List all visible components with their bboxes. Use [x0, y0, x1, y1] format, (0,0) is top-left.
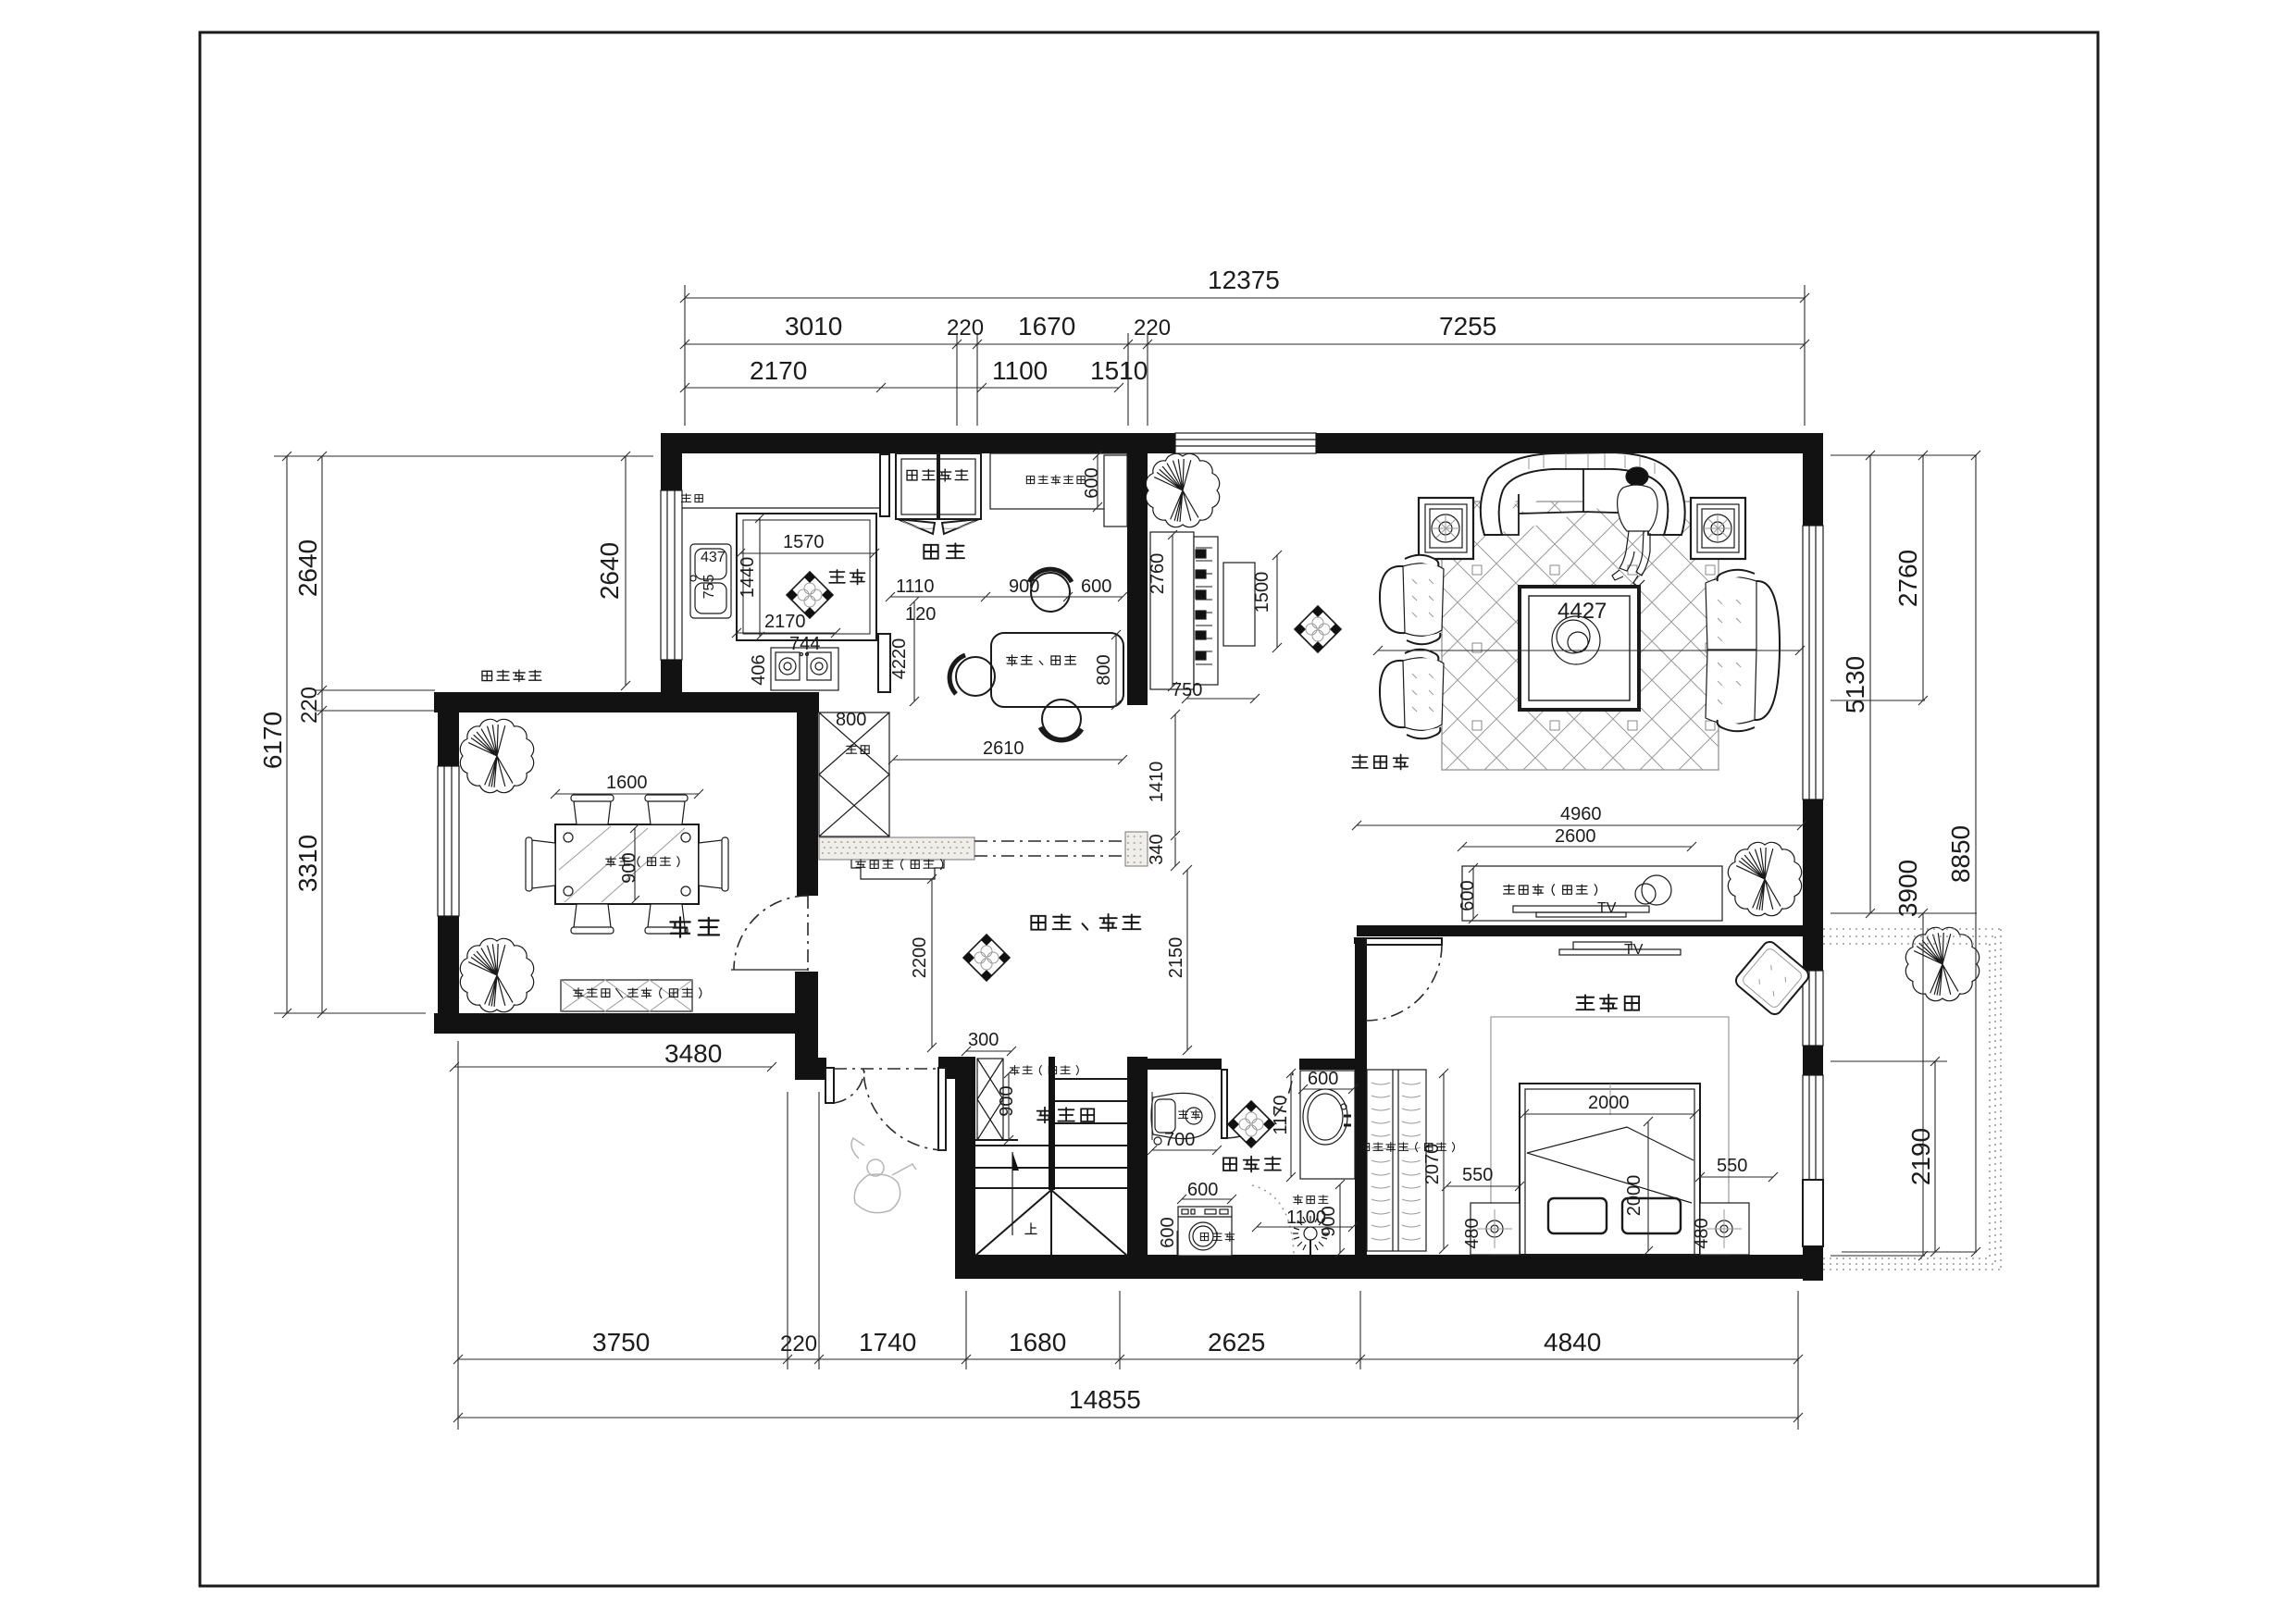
svg-text:750: 750 — [1172, 680, 1202, 700]
svg-text:1740: 1740 — [859, 1328, 916, 1357]
svg-text:2625: 2625 — [1208, 1328, 1265, 1357]
svg-text:1170: 1170 — [1271, 1095, 1291, 1134]
svg-text:1510: 1510 — [1090, 356, 1148, 385]
svg-text:2170: 2170 — [750, 356, 807, 385]
svg-text:480: 480 — [1692, 1218, 1712, 1248]
svg-text:2200: 2200 — [910, 937, 930, 979]
svg-text:600: 600 — [1308, 1069, 1338, 1089]
svg-text:2760: 2760 — [1893, 550, 1922, 607]
svg-text:550: 550 — [1462, 1165, 1493, 1185]
svg-text:900: 900 — [619, 852, 639, 883]
svg-text:4840: 4840 — [1544, 1328, 1601, 1357]
svg-text:3480: 3480 — [664, 1039, 722, 1068]
svg-text:1110: 1110 — [896, 576, 935, 597]
svg-text:2170: 2170 — [764, 612, 806, 632]
svg-text:1680: 1680 — [1009, 1328, 1066, 1357]
svg-text:1670: 1670 — [1018, 312, 1075, 341]
svg-text:12375: 12375 — [1208, 266, 1280, 294]
svg-text:1570: 1570 — [783, 532, 825, 552]
svg-text:900: 900 — [1319, 1206, 1339, 1236]
svg-text:406: 406 — [749, 654, 769, 685]
svg-text:550: 550 — [1717, 1156, 1747, 1176]
svg-text:1440: 1440 — [738, 557, 758, 599]
svg-text:4960: 4960 — [1560, 804, 1602, 824]
svg-text:2600: 2600 — [1555, 826, 1596, 847]
svg-text:600: 600 — [1458, 880, 1478, 911]
svg-text:7255: 7255 — [1439, 312, 1496, 341]
svg-text:2000: 2000 — [1624, 1175, 1644, 1217]
svg-text:1600: 1600 — [606, 773, 648, 793]
svg-text:220: 220 — [780, 1332, 817, 1357]
svg-text:1100: 1100 — [992, 356, 1048, 385]
svg-text:800: 800 — [1094, 654, 1114, 685]
svg-text:5130: 5130 — [1841, 656, 1869, 713]
svg-text:2190: 2190 — [1906, 1128, 1935, 1185]
svg-text:744: 744 — [789, 634, 820, 654]
svg-text:2640: 2640 — [595, 542, 624, 600]
svg-text:900: 900 — [1009, 576, 1039, 597]
svg-text:2760: 2760 — [1148, 553, 1168, 595]
svg-text:TV: TV — [1597, 900, 1617, 916]
svg-text:2640: 2640 — [293, 539, 322, 597]
svg-text:1410: 1410 — [1147, 762, 1167, 803]
svg-text:340: 340 — [1147, 834, 1167, 864]
svg-text:14855: 14855 — [1069, 1385, 1141, 1414]
svg-text:600: 600 — [1158, 1217, 1178, 1247]
svg-text:3310: 3310 — [293, 835, 322, 892]
svg-text:2150: 2150 — [1166, 937, 1186, 979]
svg-text:600: 600 — [1187, 1180, 1218, 1200]
svg-text:3750: 3750 — [592, 1328, 650, 1357]
svg-text:2000: 2000 — [1588, 1093, 1630, 1113]
svg-text:437: 437 — [701, 550, 726, 565]
svg-text:480: 480 — [1462, 1218, 1483, 1248]
svg-text:2610: 2610 — [983, 738, 1024, 759]
svg-text:700: 700 — [1164, 1130, 1195, 1150]
svg-text:TV: TV — [1624, 942, 1644, 958]
svg-text:300: 300 — [968, 1030, 999, 1050]
svg-text:4427: 4427 — [1558, 599, 1607, 624]
svg-text:900: 900 — [997, 1085, 1017, 1116]
svg-text:1500: 1500 — [1252, 572, 1272, 613]
svg-text:800: 800 — [836, 710, 866, 730]
svg-text:220: 220 — [1134, 316, 1171, 341]
svg-text:8850: 8850 — [1946, 825, 1975, 883]
svg-text:600: 600 — [1081, 576, 1111, 597]
svg-text:120: 120 — [905, 604, 936, 625]
svg-text:755: 755 — [701, 575, 717, 600]
svg-text:3010: 3010 — [785, 312, 842, 341]
svg-text:220: 220 — [947, 316, 984, 341]
svg-text:4220: 4220 — [889, 638, 910, 680]
svg-text:3900: 3900 — [1893, 860, 1922, 917]
svg-text:220: 220 — [297, 687, 322, 724]
svg-text:6170: 6170 — [258, 712, 287, 769]
